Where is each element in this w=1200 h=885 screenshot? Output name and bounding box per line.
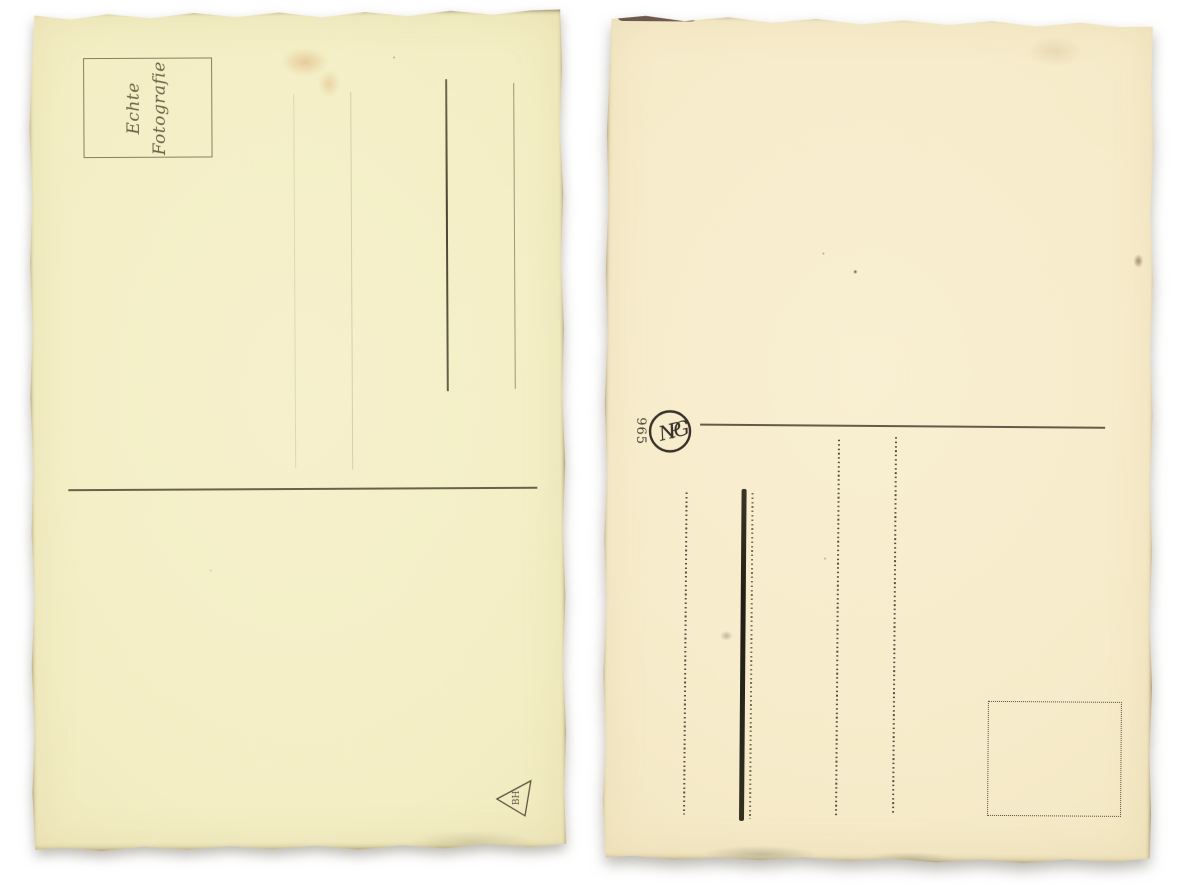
address-rule-dark <box>445 79 449 391</box>
address-rule-faint-2 <box>350 92 353 470</box>
right-postcard-wrap: NPG 965 <box>601 14 1158 864</box>
dotted-rule-1 <box>683 492 687 814</box>
address-rule-thin <box>513 83 516 389</box>
series-number: 965 <box>632 408 648 454</box>
stamp-box-text: Echte Fotografie <box>84 58 212 157</box>
printer-triangle-mark: BH <box>494 777 534 819</box>
address-divider-line <box>68 487 537 491</box>
stamp-box-line1: Echte <box>122 61 148 155</box>
center-dotted-rule <box>749 493 753 819</box>
echte-fotografie-label: Echte Fotografie <box>122 61 173 155</box>
dotted-rule-3 <box>892 437 896 814</box>
stamp-box-outline: Echte Fotografie <box>83 57 213 158</box>
scanned-postcards-scene: Echte Fotografie BH NPG 9 <box>0 0 1200 885</box>
left-postcard-wrap: Echte Fotografie BH <box>28 9 567 852</box>
dotted-stamp-box <box>987 701 1122 817</box>
header-rule-line <box>700 424 1105 429</box>
left-postcard-back: Echte Fotografie BH <box>28 9 567 852</box>
address-rule-faint-1 <box>293 94 296 468</box>
publisher-monogram-icon: NPG <box>647 408 693 454</box>
dotted-rule-2 <box>835 440 839 816</box>
top-edge-ink-mark <box>617 11 697 22</box>
triangle-mark-text: BH <box>512 790 522 805</box>
stamp-box-line2: Fotografie <box>148 61 174 155</box>
right-postcard-back: NPG 965 <box>601 14 1158 864</box>
center-heavy-ink-line <box>739 489 746 821</box>
